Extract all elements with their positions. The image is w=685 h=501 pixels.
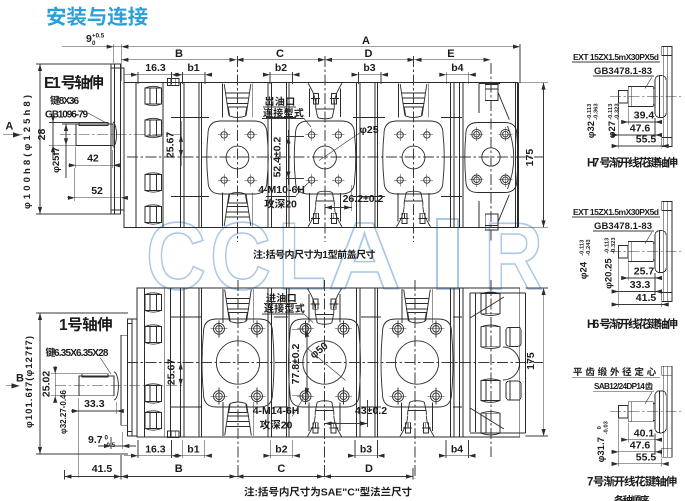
svg-text:B: B [175,463,183,475]
svg-text:-0.243: -0.243 [586,239,592,256]
svg-text:EXT 15ZX1.5mX30PX5d: EXT 15ZX1.5mX30PX5d [573,207,659,217]
svg-text:40.1: 40.1 [634,427,655,439]
svg-text:b1: b1 [187,444,199,456]
svg-text:25.7: 25.7 [634,266,655,278]
svg-text:GB1096-79: GB1096-79 [45,110,88,121]
svg-text:SAE"C": SAE"C" [321,487,360,499]
svg-text:-0.323: -0.323 [615,103,621,120]
svg-text:39.4: 39.4 [634,110,655,122]
svg-text:D: D [365,463,373,475]
svg-text:B: B [16,373,24,385]
svg-text:φ32: φ32 [586,121,597,138]
svg-text:E: E [447,48,454,60]
svg-text:-0.113: -0.113 [608,103,614,120]
svg-text:0: 0 [597,426,603,429]
svg-text:33.3: 33.3 [84,398,105,410]
svg-text:D: D [365,48,373,60]
svg-text:GB3478.1-83: GB3478.1-83 [594,66,652,77]
svg-text:b3: b3 [363,62,375,74]
svg-text:16.3: 16.3 [145,62,166,74]
svg-text:6.35X6.35X28: 6.35X6.35X28 [54,348,109,359]
svg-text:φ20.25: φ20.25 [604,258,615,289]
svg-text:55.5: 55.5 [636,452,657,464]
svg-text:φ25: φ25 [359,124,378,136]
svg-text:+0.5: +0.5 [92,33,105,40]
svg-text:25.67: 25.67 [166,359,178,385]
svg-text:-0.03: -0.03 [604,420,610,434]
svg-text:28: 28 [36,128,48,140]
svg-text:33.3: 33.3 [630,279,651,291]
svg-text:4-M14-6H: 4-M14-6H [253,405,300,417]
svg-text:0: 0 [105,435,109,442]
svg-text::: : [263,250,266,261]
svg-text:1: 1 [59,317,68,334]
svg-text:1: 1 [322,250,328,261]
svg-text:8X36: 8X36 [59,96,80,107]
svg-text:175: 175 [524,149,536,167]
svg-text:-0.363: -0.363 [594,103,600,120]
svg-text:b2: b2 [275,62,287,74]
svg-text:25.67: 25.67 [165,132,177,158]
svg-text:b4: b4 [451,444,463,456]
svg-text:42: 42 [87,153,99,165]
svg-text:b1: b1 [187,62,199,74]
svg-text:-0.113: -0.113 [604,237,610,254]
svg-text:16.3: 16.3 [145,444,166,456]
svg-text:φ32.27-0.46: φ32.27-0.46 [59,389,68,434]
svg-text:C: C [276,48,284,60]
svg-text:9.7: 9.7 [88,434,103,446]
svg-text:φ24: φ24 [579,261,590,279]
svg-text:41.5: 41.5 [92,463,113,475]
svg-text:φ25f7: φ25f7 [51,147,62,173]
svg-text::: : [255,487,259,499]
svg-text:b3: b3 [360,444,372,456]
svg-text:77.8±0.2: 77.8±0.2 [290,343,302,384]
svg-text:A: A [362,35,370,47]
svg-text:E1: E1 [44,75,61,92]
svg-text:φ31.7: φ31.7 [596,437,607,462]
svg-text:41.5: 41.5 [636,292,657,304]
svg-text:b4: b4 [451,62,463,74]
svg-text:47.6: 47.6 [630,440,651,452]
svg-text:7: 7 [587,477,593,489]
svg-text:SAB12/24DP14: SAB12/24DP14 [594,382,645,391]
svg-text:0: 0 [92,40,96,47]
svg-text:43±0.2: 43±0.2 [355,405,387,417]
svg-text:C: C [146,203,206,310]
svg-text:26.2±0.2: 26.2±0.2 [343,193,384,205]
svg-text:25.02: 25.02 [41,371,53,397]
svg-text:-0.113: -0.113 [579,239,585,256]
svg-text:175: 175 [525,352,537,370]
svg-text:4-M10-6H: 4-M10-6H [258,184,305,196]
svg-text:GB3478.1-83: GB3478.1-83 [594,221,652,232]
svg-text:φ27: φ27 [607,121,618,138]
svg-text:20: 20 [281,420,293,432]
svg-text:52.4±0.2: 52.4±0.2 [272,136,284,177]
svg-text:b2: b2 [275,444,287,456]
svg-text:55.5: 55.5 [636,134,657,146]
svg-text:EXT 15ZX1.5mX30PX5d: EXT 15ZX1.5mX30PX5d [573,52,659,62]
svg-text:20: 20 [285,199,297,211]
svg-text:52: 52 [91,185,103,197]
svg-text:-0.113: -0.113 [587,103,593,120]
svg-text:H6: H6 [587,319,599,331]
svg-text:H7: H7 [587,158,599,170]
svg-text:A: A [5,121,13,133]
svg-text:B: B [175,48,183,60]
svg-text:φ101.6f7(φ127f7): φ101.6f7(φ127f7) [24,336,35,428]
svg-text:-0.323: -0.323 [611,237,617,254]
svg-text:C: C [277,463,285,475]
